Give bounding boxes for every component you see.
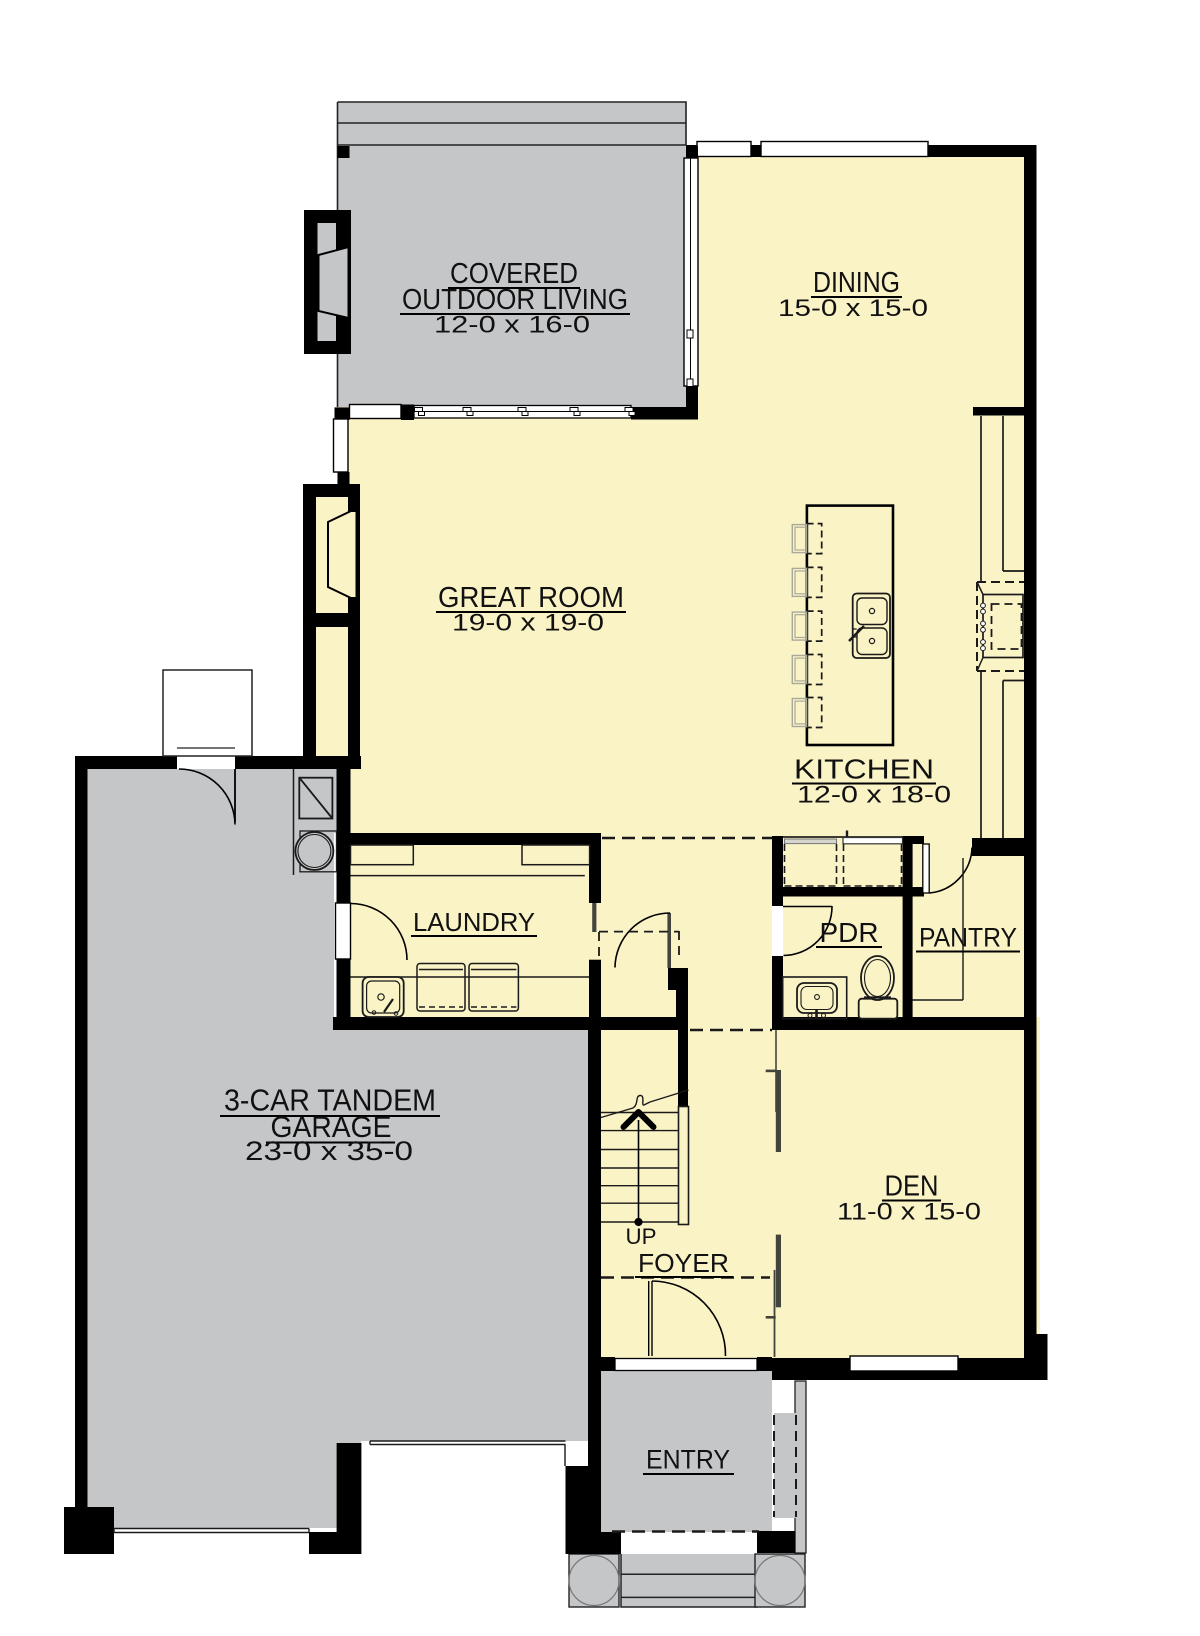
svg-text:UP: UP	[626, 1224, 657, 1249]
svg-text:19-0 x 19-0: 19-0 x 19-0	[452, 610, 604, 637]
svg-text:PDR: PDR	[820, 917, 879, 948]
svg-text:11-0 x 15-0: 11-0 x 15-0	[837, 1199, 981, 1226]
svg-text:FOYER: FOYER	[638, 1248, 729, 1278]
svg-text:KITCHEN: KITCHEN	[794, 754, 934, 785]
svg-text:12-0 x 18-0: 12-0 x 18-0	[797, 782, 951, 809]
svg-text:12-0 x 16-0: 12-0 x 16-0	[434, 312, 590, 339]
svg-text:LAUNDRY: LAUNDRY	[413, 907, 535, 937]
svg-text:PANTRY: PANTRY	[919, 923, 1017, 953]
svg-text:15-0 x 15-0: 15-0 x 15-0	[778, 295, 928, 322]
svg-text:23-0 x 35-0: 23-0 x 35-0	[245, 1136, 413, 1166]
svg-text:ENTRY: ENTRY	[646, 1445, 730, 1475]
